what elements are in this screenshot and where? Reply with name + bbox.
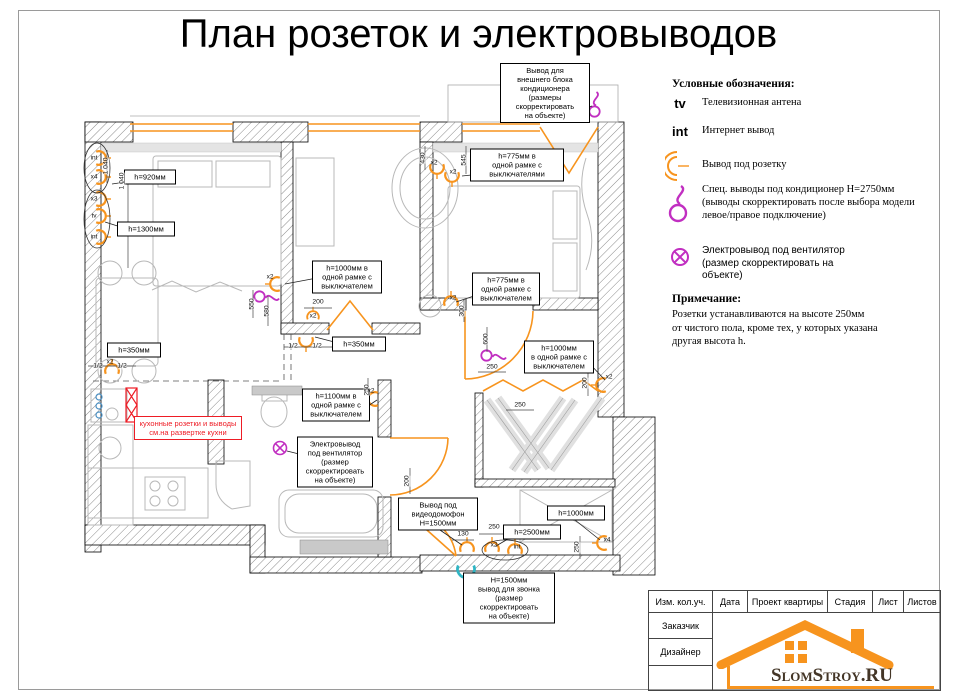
plan-callout: h=1000мм — [547, 506, 605, 521]
dimension-label: 430 — [420, 152, 427, 163]
logo-cell: SlomStroy.RU — [713, 613, 941, 691]
tv-antenna-icon: tv — [662, 96, 698, 111]
fan-outlet-icon — [662, 245, 698, 272]
socket-count-label: x2 — [450, 295, 457, 302]
plan-callout: Вывод под видеодомофон Н=1500мм — [398, 498, 478, 531]
dimension-label: 250 — [488, 524, 499, 531]
tb-header-cell: Проект квартиры — [748, 591, 828, 613]
plan-callout: h=1300мм — [117, 222, 175, 237]
socket-outlet-icon — [662, 150, 698, 185]
socket-count-label: x4 — [604, 537, 611, 544]
socket-count-label: int — [91, 155, 98, 162]
socket-count-label: int — [514, 544, 521, 551]
socket-count-label: x2 — [107, 359, 114, 366]
legend-heading: Условные обозначения: — [672, 78, 795, 90]
socket-count-label: x3 — [91, 196, 98, 203]
dimension-label: 580 — [264, 305, 271, 316]
internet-outlet-icon: int — [662, 124, 698, 139]
dimension-label: 200 — [404, 475, 411, 486]
dimension-label: 550 — [249, 298, 256, 309]
dimension-label: 600 — [483, 333, 490, 344]
tb-row-customer: Заказчик — [649, 613, 713, 639]
dimension-label: 1/2 — [117, 363, 126, 370]
tb-row-empty — [649, 666, 713, 691]
dimension-label: 130 — [457, 531, 468, 538]
plan-callout: h=1000мм в одной рамке с выключателем — [312, 261, 382, 294]
dimension-label: 1 040 — [119, 172, 126, 189]
tb-header-cell: Стадия — [828, 591, 873, 613]
note-heading: Примечание: — [672, 293, 741, 305]
logo-house-icon — [713, 613, 941, 669]
legend-item-label: Вывод под розетку — [702, 158, 787, 171]
plan-callout: h=1000мм в одной рамке с выключателем — [524, 341, 594, 374]
legend-item-label: Телевизионная антена — [702, 96, 801, 109]
drawing-sheet: План розеток и электровыводов — [0, 0, 957, 700]
socket-count-label: int — [91, 234, 98, 241]
legend-item-tv: tv Телевизионная антена — [662, 96, 801, 111]
dimension-label: 545 — [461, 154, 468, 165]
tb-header-cell: Лист — [873, 591, 904, 613]
plan-callout: Электровывод под вентилятор (размер скор… — [297, 437, 373, 488]
socket-count-label: x2 — [450, 169, 457, 176]
socket-count-label: x2 — [606, 374, 613, 381]
tb-header-cell: Листов — [904, 591, 941, 613]
tb-header-cell: Дата — [713, 591, 748, 613]
socket-count-label: x2 — [310, 313, 317, 320]
legend-item-label: Спец. выводы под кондиционер H=2750мм (в… — [702, 183, 915, 222]
dimension-label: 250 — [486, 364, 497, 371]
dimension-label: 1/2 — [312, 343, 321, 350]
ac-outlet-icon — [662, 183, 698, 230]
plan-callout: h=775мм в одной рамке с выключателем — [472, 273, 540, 306]
dimension-label: 250 — [514, 402, 525, 409]
legend-item-label: Электровывод под вентилятор (размер скор… — [702, 245, 845, 283]
socket-count-label: tv — [91, 213, 96, 220]
socket-count-label: x2 — [491, 542, 498, 549]
dimension-label: 1 040 — [103, 157, 110, 174]
logo-text: SlomStroy.RU — [727, 666, 934, 689]
dimension-label: 300 — [459, 305, 466, 316]
socket-count-label: x2 — [368, 388, 375, 395]
socket-count-label: x4 — [91, 174, 98, 181]
socket-count-label: x2 — [431, 160, 438, 167]
dimension-label: 200 — [582, 377, 589, 388]
legend-item-label: Интернет вывод — [702, 124, 774, 137]
note-text: Розетки устанавливаются на высоте 250мм … — [672, 308, 878, 349]
legend-item-ac: Спец. выводы под кондиционер H=2750мм (в… — [662, 183, 915, 230]
plan-callout: h=775мм в одной рамке с выключателями — [470, 149, 564, 182]
tb-row-designer: Дизайнер — [649, 639, 713, 666]
kitchen-note-callout: кухонные розетки и выводы см.на развертк… — [134, 416, 242, 440]
legend-item-fan: Электровывод под вентилятор (размер скор… — [662, 245, 845, 283]
plan-callout: Вывод для внешнего блока кондиционера (р… — [500, 63, 590, 123]
dimension-label: 200 — [312, 299, 323, 306]
plan-callout: h=350мм — [107, 343, 161, 358]
plan-callout: h=920мм — [124, 170, 176, 185]
plan-callout: h=350мм — [332, 337, 386, 352]
plan-callout: h=1100мм в одной рамке с выключателем — [302, 389, 370, 422]
plan-callout: Н=1500мм вывод для звонка (размер скорре… — [463, 573, 555, 624]
legend-item-socket: Вывод под розетку — [662, 150, 787, 185]
socket-count-label: x2 — [267, 274, 274, 281]
tb-header-cell: Изм. кол.уч. — [649, 591, 713, 613]
dimension-label: 250 — [574, 541, 581, 552]
dimension-label: 1/2 — [93, 363, 102, 370]
plan-callout: h=2500мм — [503, 525, 561, 540]
title-block: Изм. кол.уч. Дата Проект квартиры Стадия… — [648, 590, 941, 691]
dimension-label: 1/2 — [288, 343, 297, 350]
legend-item-int: int Интернет вывод — [662, 124, 774, 139]
